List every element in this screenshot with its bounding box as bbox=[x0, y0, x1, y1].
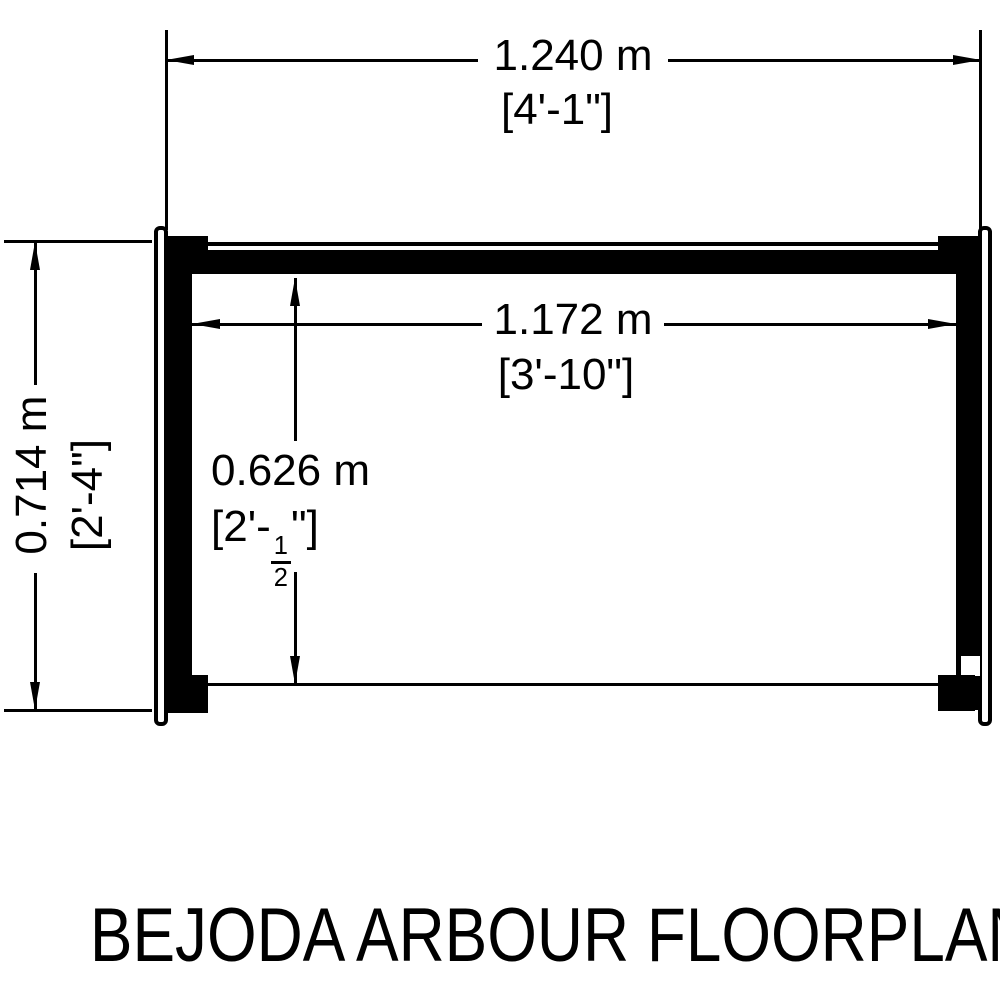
dimension-line-segment bbox=[192, 323, 482, 326]
dimension-line-segment bbox=[668, 59, 981, 62]
overall-width-imperial-label: [4'-1"] bbox=[501, 87, 613, 133]
bottom-edge-line bbox=[208, 683, 938, 686]
overall-depth-metric-label: 0.714 m bbox=[9, 380, 55, 570]
arrowhead-right-icon bbox=[953, 55, 981, 65]
imperial-prefix: [2'- bbox=[211, 502, 271, 551]
extension-line-bottom bbox=[4, 709, 152, 712]
right-frame-post bbox=[978, 226, 992, 726]
inner-width-metric-label: 1.172 m bbox=[494, 297, 653, 343]
dimension-line-segment bbox=[664, 323, 956, 326]
left-frame-post bbox=[154, 226, 168, 726]
corner-post-left bbox=[168, 675, 208, 713]
arrowhead-up-icon bbox=[290, 278, 300, 306]
arrowhead-right-icon bbox=[928, 319, 956, 329]
right-wall bbox=[956, 242, 980, 710]
arrowhead-up-icon bbox=[30, 242, 40, 270]
floorplan-canvas: 1.240 m [4'-1"] 1.172 m [3'-10"] 0.626 m… bbox=[0, 0, 1000, 1000]
imperial-suffix: "] bbox=[291, 502, 319, 551]
overall-depth-imperial-label: [2'-4"] bbox=[65, 420, 111, 570]
inner-depth-imperial-label: [2'-12"] bbox=[211, 504, 319, 592]
fraction-numerator: 1 bbox=[271, 534, 291, 565]
fraction-denominator: 2 bbox=[274, 564, 288, 592]
fraction: 12 bbox=[271, 534, 291, 592]
right-wall-notch bbox=[961, 656, 980, 676]
dimension-line-segment bbox=[166, 59, 478, 62]
overall-width-metric-label: 1.240 m bbox=[494, 33, 653, 79]
extension-line-top bbox=[4, 240, 152, 243]
arrowhead-down-icon bbox=[290, 656, 300, 684]
inner-depth-metric-label: 0.626 m bbox=[211, 448, 370, 494]
title-row: BEJODA ARBOUR FLOORPLAN bbox=[0, 898, 1000, 974]
page-title: BEJODA ARBOUR FLOORPLAN bbox=[90, 898, 1000, 974]
corner-post-right bbox=[938, 675, 975, 711]
inner-width-imperial-label: [3'-10"] bbox=[498, 352, 635, 398]
left-wall bbox=[168, 242, 192, 713]
arrowhead-left-icon bbox=[166, 55, 194, 65]
top-wall-inner-stripe bbox=[208, 246, 938, 250]
arrowhead-down-icon bbox=[30, 682, 40, 710]
arrowhead-left-icon bbox=[192, 319, 220, 329]
